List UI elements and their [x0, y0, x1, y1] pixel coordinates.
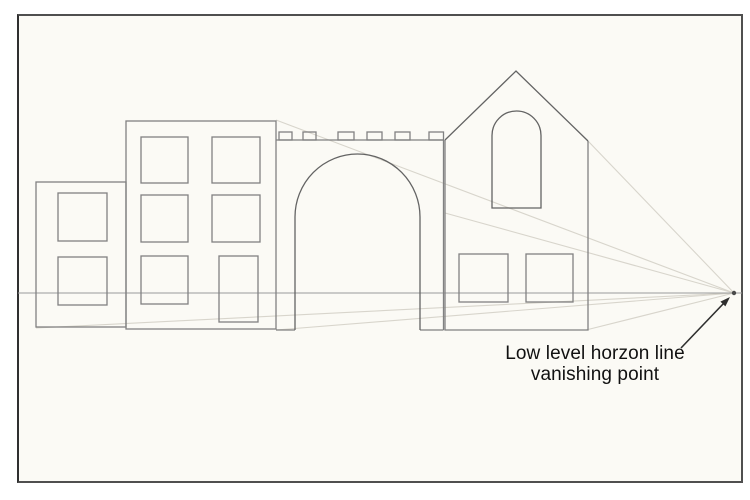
perspective-drawing — [0, 0, 750, 500]
window — [212, 137, 260, 183]
castle-wall-outline — [276, 140, 444, 330]
window — [58, 193, 107, 241]
church-building — [445, 71, 588, 330]
vanishing-point-dot — [732, 291, 736, 295]
merlon — [367, 132, 382, 140]
window — [459, 254, 508, 302]
construction-line-church-eave — [588, 141, 734, 293]
window — [141, 137, 188, 183]
archway — [295, 154, 420, 330]
buildings — [36, 71, 588, 330]
construction-line-ground-middle — [276, 293, 734, 330]
merlon — [338, 132, 354, 140]
door — [219, 256, 258, 322]
label-line-2: vanishing point — [470, 364, 720, 385]
church-roof — [445, 71, 588, 141]
arrow-shaft — [681, 304, 724, 349]
tall-building-outline — [126, 121, 276, 329]
merlon — [395, 132, 410, 140]
window — [526, 254, 573, 302]
window — [141, 256, 188, 304]
tall-building — [126, 121, 276, 329]
construction-line-tall-building-top — [276, 120, 734, 293]
arched-window — [492, 111, 541, 208]
castle-wall — [276, 132, 444, 330]
construction-line-wall-top — [445, 213, 734, 293]
small-building — [36, 182, 126, 327]
perspective-worksheet: Low level horzon line vanishing point — [0, 0, 750, 500]
window — [212, 195, 260, 242]
vanishing-point-label: Low level horzon line vanishing point — [470, 343, 720, 385]
merlon — [279, 132, 292, 140]
window — [58, 257, 107, 305]
merlon — [429, 132, 444, 140]
label-line-1: Low level horzon line — [470, 343, 720, 364]
window — [141, 195, 188, 242]
